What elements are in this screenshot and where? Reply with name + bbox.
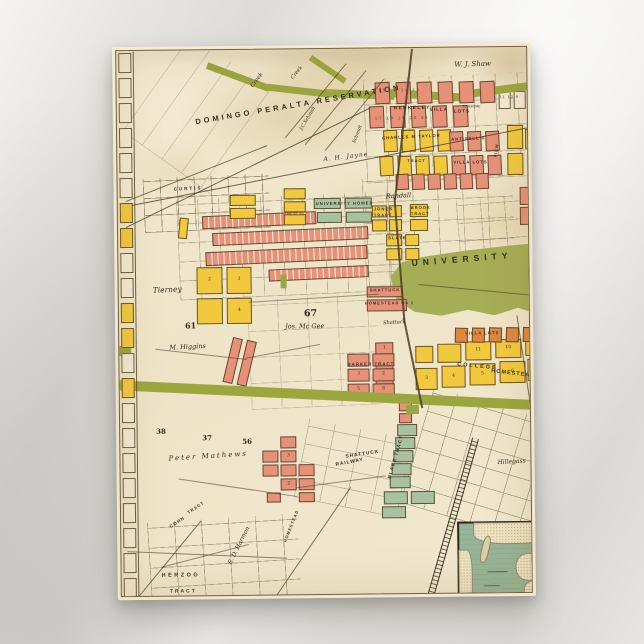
map-label: BERKELEY [394, 106, 431, 111]
map-label: M. Higgins [169, 343, 206, 351]
map-label: BROOK [411, 206, 431, 210]
map-label: Hillegass [497, 458, 525, 466]
map-label: TRACT [170, 589, 197, 594]
map-label: Tierney [153, 285, 182, 294]
map-label: Creek [290, 66, 303, 81]
map-label: TRACT [374, 213, 393, 217]
map-label: A. H. Jayne [323, 152, 368, 163]
map-label: SLATE [388, 236, 406, 240]
map-label: Randall [386, 192, 412, 200]
map-label: Jos. Mc Gee [285, 323, 324, 330]
map-label: E. D. Harmon [228, 526, 252, 566]
postcard: 2341832561110345632 DOMINGO PERALTA RESE… [112, 43, 536, 600]
map-label: HOMESTEAD [283, 509, 299, 543]
map-label: RAILWAY [335, 459, 364, 469]
map-block [529, 91, 533, 109]
map-label: UNIVERSITY HOMES [316, 201, 374, 206]
map-label: HERZOG [162, 573, 201, 579]
map-label: LOTS [454, 109, 470, 114]
map-label: SHATTUCK [370, 288, 401, 293]
map-label-layer: DOMINGO PERALTA RESERVATIONCreekCreekJ.C… [116, 47, 532, 596]
map-label: CURTIS [174, 186, 203, 192]
map-label: W. J. Shaw [454, 61, 491, 69]
map-label: HOMESTEAD No 1 [365, 301, 414, 306]
map-label: VILLA LOTS [465, 331, 499, 336]
map-label: DOMINGO PERALTA RESERVATION [195, 84, 402, 126]
marble-background: 2341832561110345632 DOMINGO PERALTA RESE… [0, 0, 644, 644]
map-label: 61 [185, 321, 196, 329]
map-label: VIEW [493, 143, 499, 158]
map-label: 67 [304, 309, 317, 319]
map-label: BLAKE TRACT [389, 435, 406, 480]
map-label: JONES [374, 207, 393, 211]
map-label: TRACT [411, 212, 430, 216]
map-label: 15 13 14 13 [379, 89, 421, 93]
map-label: J.C.Schmidt [300, 107, 318, 132]
map-label: Peter Mathews [168, 451, 248, 463]
berkeley-map: 2341832561110345632 DOMINGO PERALTA RESE… [115, 46, 533, 597]
map-label: COHN [169, 516, 186, 529]
map-label: 56 [242, 438, 252, 445]
map-label: BARKER TRACT [347, 362, 394, 367]
map-label: 17 18 19 20 21 [375, 116, 430, 121]
map-label: Creek [251, 72, 266, 89]
map-label: TRACT [187, 501, 205, 515]
map-label: VILLA [430, 108, 448, 113]
map-label: 11 13 9 [500, 96, 519, 100]
map-label: HOMESTEAD [491, 369, 533, 379]
map-label: Shattuck [383, 320, 406, 326]
map-label: Schmidt [353, 125, 364, 144]
map-label: 38 [156, 428, 166, 435]
map-label: UNIVERSITY [411, 251, 512, 268]
map-label: CHARLES M TAYLOR [382, 134, 441, 141]
map-label: 37 [202, 434, 212, 441]
map-label: TRACT [407, 159, 426, 163]
map-label: VILLA LOTS [453, 160, 487, 165]
map-label: RANSOME [463, 105, 481, 109]
map-label: ANTISELL'S [451, 136, 485, 142]
